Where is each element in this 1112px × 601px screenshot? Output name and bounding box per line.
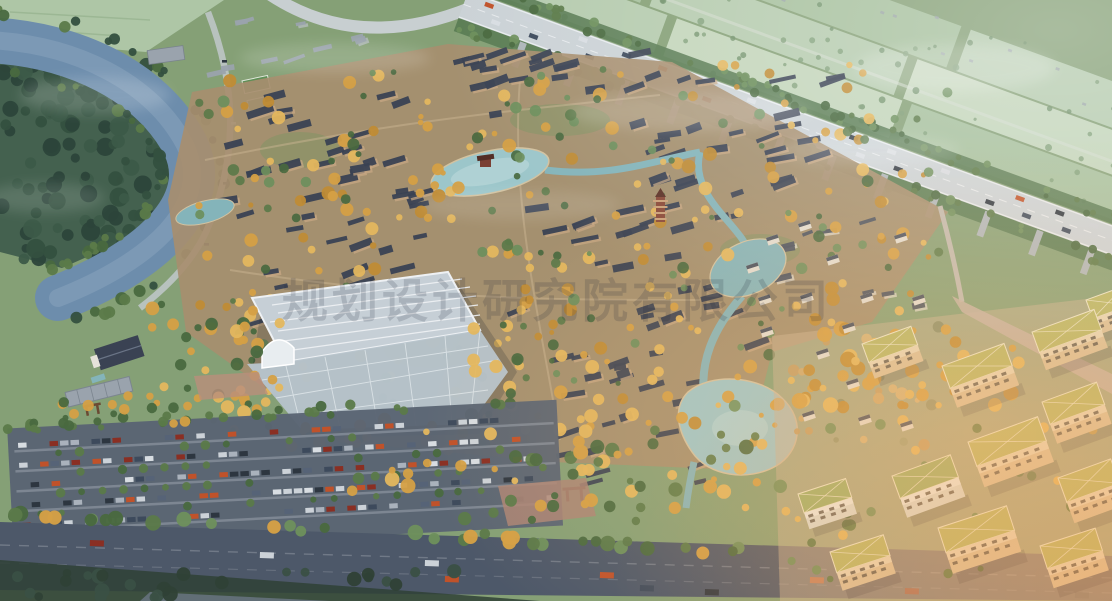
atmosphere: [0, 0, 1112, 601]
rendering-canvas: 规划设计研究院有限公司: [0, 0, 1112, 601]
scene-rendering: [0, 0, 1112, 601]
